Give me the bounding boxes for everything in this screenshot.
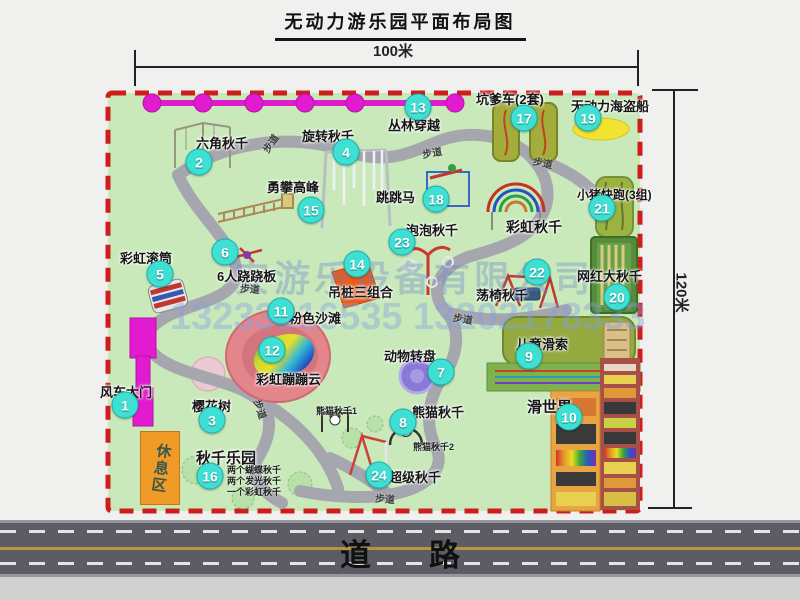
attraction-badge-17: 17: [511, 105, 538, 132]
attraction-label-8: 熊猫秋千: [412, 402, 464, 421]
attraction-label-20: 网红大秋千: [577, 266, 642, 285]
attraction-label-11: 粉色沙滩: [289, 308, 341, 327]
attraction-badge-9: 9: [516, 343, 543, 370]
attraction-badge-18: 18: [423, 186, 450, 213]
attraction-badge-24: 24: [366, 462, 393, 489]
rest-area-label: 休息区: [146, 441, 174, 494]
road-label: 道路: [0, 530, 800, 575]
roadside-strip: [0, 577, 800, 600]
attraction-badge-5: 5: [147, 261, 174, 288]
attraction-label-17: 坑爹车(2套): [476, 89, 544, 108]
park-layout-map: 无动力游乐园平面布局图 100米 120米: [0, 0, 800, 600]
rest-area: 休息区: [140, 431, 180, 505]
attraction-label-7: 动物转盘: [384, 346, 436, 365]
attraction-label-21: 小猪快跑(3组): [577, 186, 652, 203]
attraction-label-24: 超级秋千: [389, 467, 441, 486]
extra-label-1: 熊猫秋千1: [316, 404, 357, 417]
walkway-label-6: 步道: [375, 490, 396, 506]
attraction-badge-12: 12: [259, 337, 286, 364]
attraction-label-15: 勇攀高峰: [267, 177, 319, 196]
attraction-badge-19: 19: [575, 105, 602, 132]
attraction-label-18: 跳跳马: [376, 187, 415, 206]
watermark-phone: 13233816535 13202178333: [170, 296, 646, 339]
attraction-badge-22: 22: [524, 259, 551, 286]
walkway-label-3: 步道: [240, 280, 261, 296]
attraction-badge-10: 10: [556, 404, 583, 431]
attraction-badge-7: 7: [428, 359, 455, 386]
attraction-badge-11: 11: [268, 298, 295, 325]
attraction-badge-4: 4: [333, 139, 360, 166]
attraction-label-12: 彩虹蹦蹦云: [256, 369, 321, 388]
attraction-label-22: 荡椅秋千: [476, 285, 528, 304]
attraction-badge-14: 14: [344, 251, 371, 278]
walkway-label-4: 步道: [452, 309, 474, 327]
attraction-badge-23: 23: [389, 229, 416, 256]
attraction-badge-6: 6: [212, 239, 239, 266]
extra-label-2: 熊猫秋千2: [413, 440, 454, 453]
road: 道路: [0, 520, 800, 577]
attraction-badge-8: 8: [390, 409, 417, 436]
attraction-badge-15: 15: [298, 197, 325, 224]
attraction-badge-1: 1: [112, 392, 139, 419]
attraction-badge-20: 20: [604, 284, 631, 311]
attraction-label-14: 吊桩三组合: [328, 282, 393, 301]
extra-label-0: 彩虹秋千: [506, 217, 562, 237]
attraction-badge-13: 13: [405, 94, 432, 121]
attraction-badge-16: 16: [197, 463, 224, 490]
attraction-badge-2: 2: [186, 149, 213, 176]
attraction-badge-3: 3: [199, 407, 226, 434]
swing-park-note-2: 一个彩虹秋千: [227, 485, 281, 498]
attraction-badge-21: 21: [589, 195, 616, 222]
